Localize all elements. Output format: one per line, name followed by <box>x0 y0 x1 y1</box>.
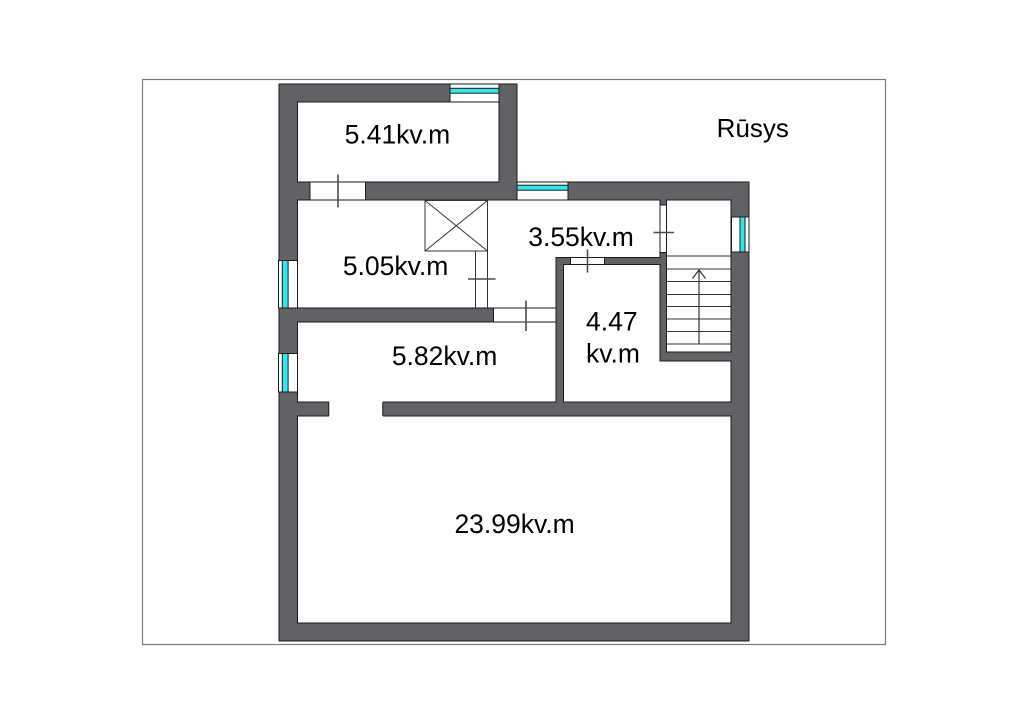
svg-text:3.55kv.m: 3.55kv.m <box>528 222 634 252</box>
svg-text:Rūsys: Rūsys <box>717 113 789 143</box>
svg-text:5.41kv.m: 5.41kv.m <box>345 120 451 150</box>
svg-text:4.47: 4.47 <box>586 306 638 336</box>
svg-text:kv.m: kv.m <box>586 339 640 369</box>
svg-text:5.82kv.m: 5.82kv.m <box>392 341 498 371</box>
svg-text:23.99kv.m: 23.99kv.m <box>454 509 574 539</box>
svg-text:5.05kv.m: 5.05kv.m <box>343 251 449 281</box>
